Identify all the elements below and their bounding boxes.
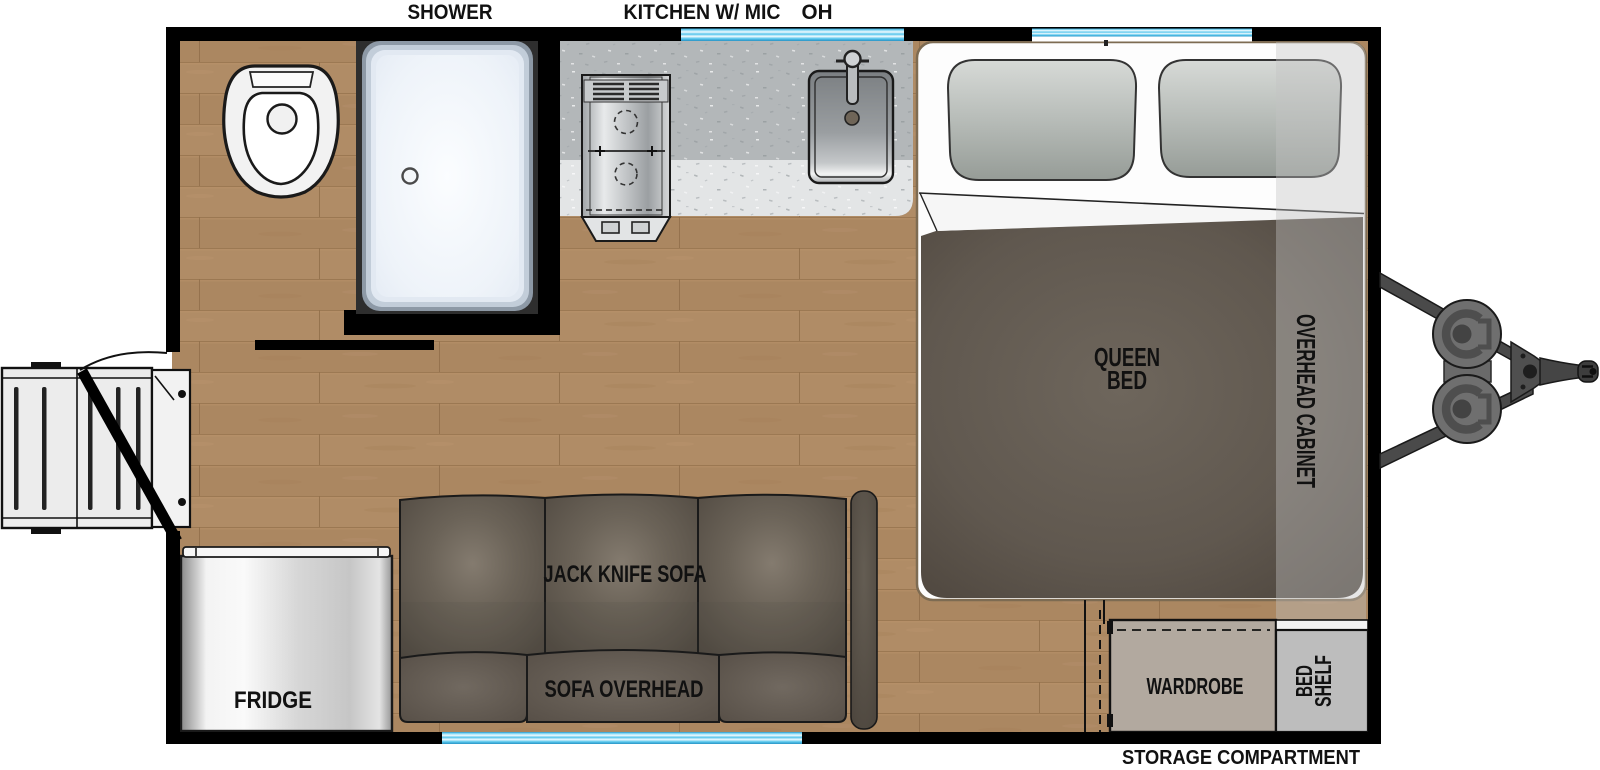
svg-text:STORAGE COMPARTMENT: STORAGE COMPARTMENT (1122, 747, 1360, 769)
svg-text:KITCHEN W/ MIC: KITCHEN W/ MIC (624, 0, 781, 24)
svg-text:SHOWER: SHOWER (408, 0, 493, 24)
svg-text:SHELF: SHELF (1310, 655, 1336, 707)
svg-text:WARDROBE: WARDROBE (1147, 673, 1244, 699)
svg-text:JACK KNIFE SOFA: JACK KNIFE SOFA (544, 561, 707, 588)
svg-text:BED: BED (1107, 365, 1147, 395)
svg-text:OH: OH (802, 0, 833, 24)
svg-text:FRIDGE: FRIDGE (234, 687, 312, 714)
svg-text:OVERHEAD CABINET: OVERHEAD CABINET (1291, 314, 1321, 488)
svg-text:SOFA OVERHEAD: SOFA OVERHEAD (545, 676, 704, 703)
